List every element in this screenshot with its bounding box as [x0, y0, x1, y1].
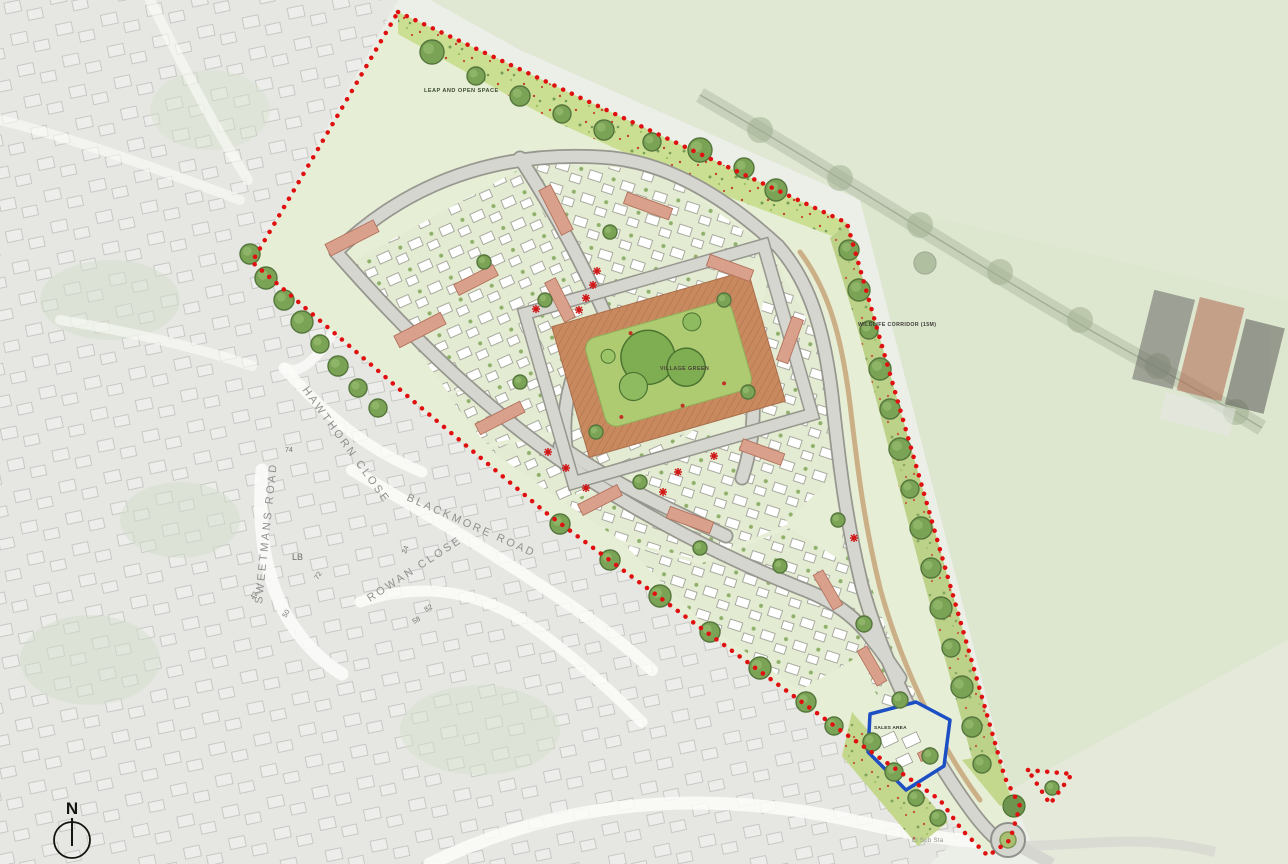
tree-highlight	[913, 520, 923, 530]
tree-highlight	[635, 477, 641, 483]
leap-open-space-label: LEAP AND OPEN SPACE	[424, 88, 499, 94]
tree-highlight	[910, 792, 917, 799]
red-asterisk-marker-icon	[582, 294, 590, 302]
red-asterisk-marker-icon	[710, 452, 718, 460]
os-plot-ref: 74	[285, 447, 293, 454]
tree-highlight	[555, 107, 563, 115]
hedgerow-tree-icon	[907, 212, 933, 238]
tree-highlight	[591, 427, 597, 433]
tree-highlight	[423, 43, 434, 54]
tree-highlight	[515, 377, 521, 383]
tree-highlight	[975, 757, 983, 765]
hedgerow-tree-icon	[747, 117, 773, 143]
tree-highlight	[277, 293, 286, 302]
red-asterisk-marker-icon	[532, 305, 540, 313]
hedgerow-tree-icon	[987, 259, 1013, 285]
tree-highlight	[719, 295, 725, 301]
tree-highlight	[944, 641, 952, 649]
tree-highlight	[313, 337, 321, 345]
red-asterisk-marker-icon	[593, 267, 601, 275]
red-asterisk-marker-icon	[575, 306, 583, 314]
suburb-green-patch	[20, 615, 160, 705]
hedgerow-tree-icon	[827, 165, 853, 191]
hedgerow-tree-icon	[1067, 307, 1093, 333]
wildlife-corridor-label: WILDLIFE CORRIDOR (15M)	[858, 322, 936, 328]
tree-highlight	[243, 247, 252, 256]
red-asterisk-marker-icon	[850, 534, 858, 542]
suburb-green-patch	[400, 685, 560, 775]
red-asterisk-marker-icon	[582, 484, 590, 492]
sales-area-label: SALES AREA	[874, 725, 907, 731]
tree-highlight	[695, 543, 701, 549]
tree-highlight	[842, 243, 851, 252]
red-asterisk-marker-icon	[544, 448, 552, 456]
os-plot-ref: LB	[292, 552, 303, 562]
tree-highlight	[965, 720, 974, 729]
red-asterisk-marker-icon	[562, 464, 570, 472]
tree-highlight	[479, 257, 485, 263]
tree-highlight	[872, 361, 882, 371]
substation-label: El Sub Sta	[912, 838, 944, 844]
tree-highlight	[851, 282, 861, 292]
village-green-label: VILLAGE GREEN	[660, 366, 709, 372]
red-asterisk-marker-icon	[659, 488, 667, 496]
tree-highlight	[597, 123, 606, 132]
tree-highlight	[513, 89, 522, 98]
tree-highlight	[371, 401, 379, 409]
tree-highlight	[924, 750, 931, 757]
tree-highlight	[954, 679, 964, 689]
tree-highlight	[469, 69, 477, 77]
tree-highlight	[331, 359, 340, 368]
tree-highlight	[883, 402, 892, 411]
tree-highlight	[351, 381, 359, 389]
tree-highlight	[903, 482, 911, 490]
tree-highlight	[1047, 783, 1053, 789]
tree-highlight	[540, 295, 546, 301]
tree-highlight	[924, 561, 933, 570]
suburb-green-patch	[120, 482, 240, 558]
tree-highlight	[645, 135, 653, 143]
tree-highlight	[775, 561, 781, 567]
tree-highlight	[865, 735, 873, 743]
tree-highlight	[294, 314, 304, 324]
tree-highlight	[892, 441, 902, 451]
masterplan-canvas: LEAP AND OPEN SPACE WILDLIFE CORRIDOR (1…	[0, 0, 1288, 864]
tree-highlight	[894, 694, 901, 701]
red-asterisk-marker-icon	[589, 281, 597, 289]
site-masterplan: LEAP AND OPEN SPACE WILDLIFE CORRIDOR (1…	[0, 0, 1288, 864]
tree-highlight	[933, 600, 943, 610]
north-arrow-letter: N	[66, 799, 78, 818]
tree-highlight	[858, 618, 865, 625]
tree-highlight	[605, 227, 611, 233]
red-asterisk-marker-icon	[674, 468, 682, 476]
tree-highlight	[743, 387, 749, 393]
tree-highlight	[737, 161, 746, 170]
field-copse	[914, 252, 936, 274]
tree-highlight	[932, 812, 939, 819]
tree-highlight	[833, 515, 839, 521]
